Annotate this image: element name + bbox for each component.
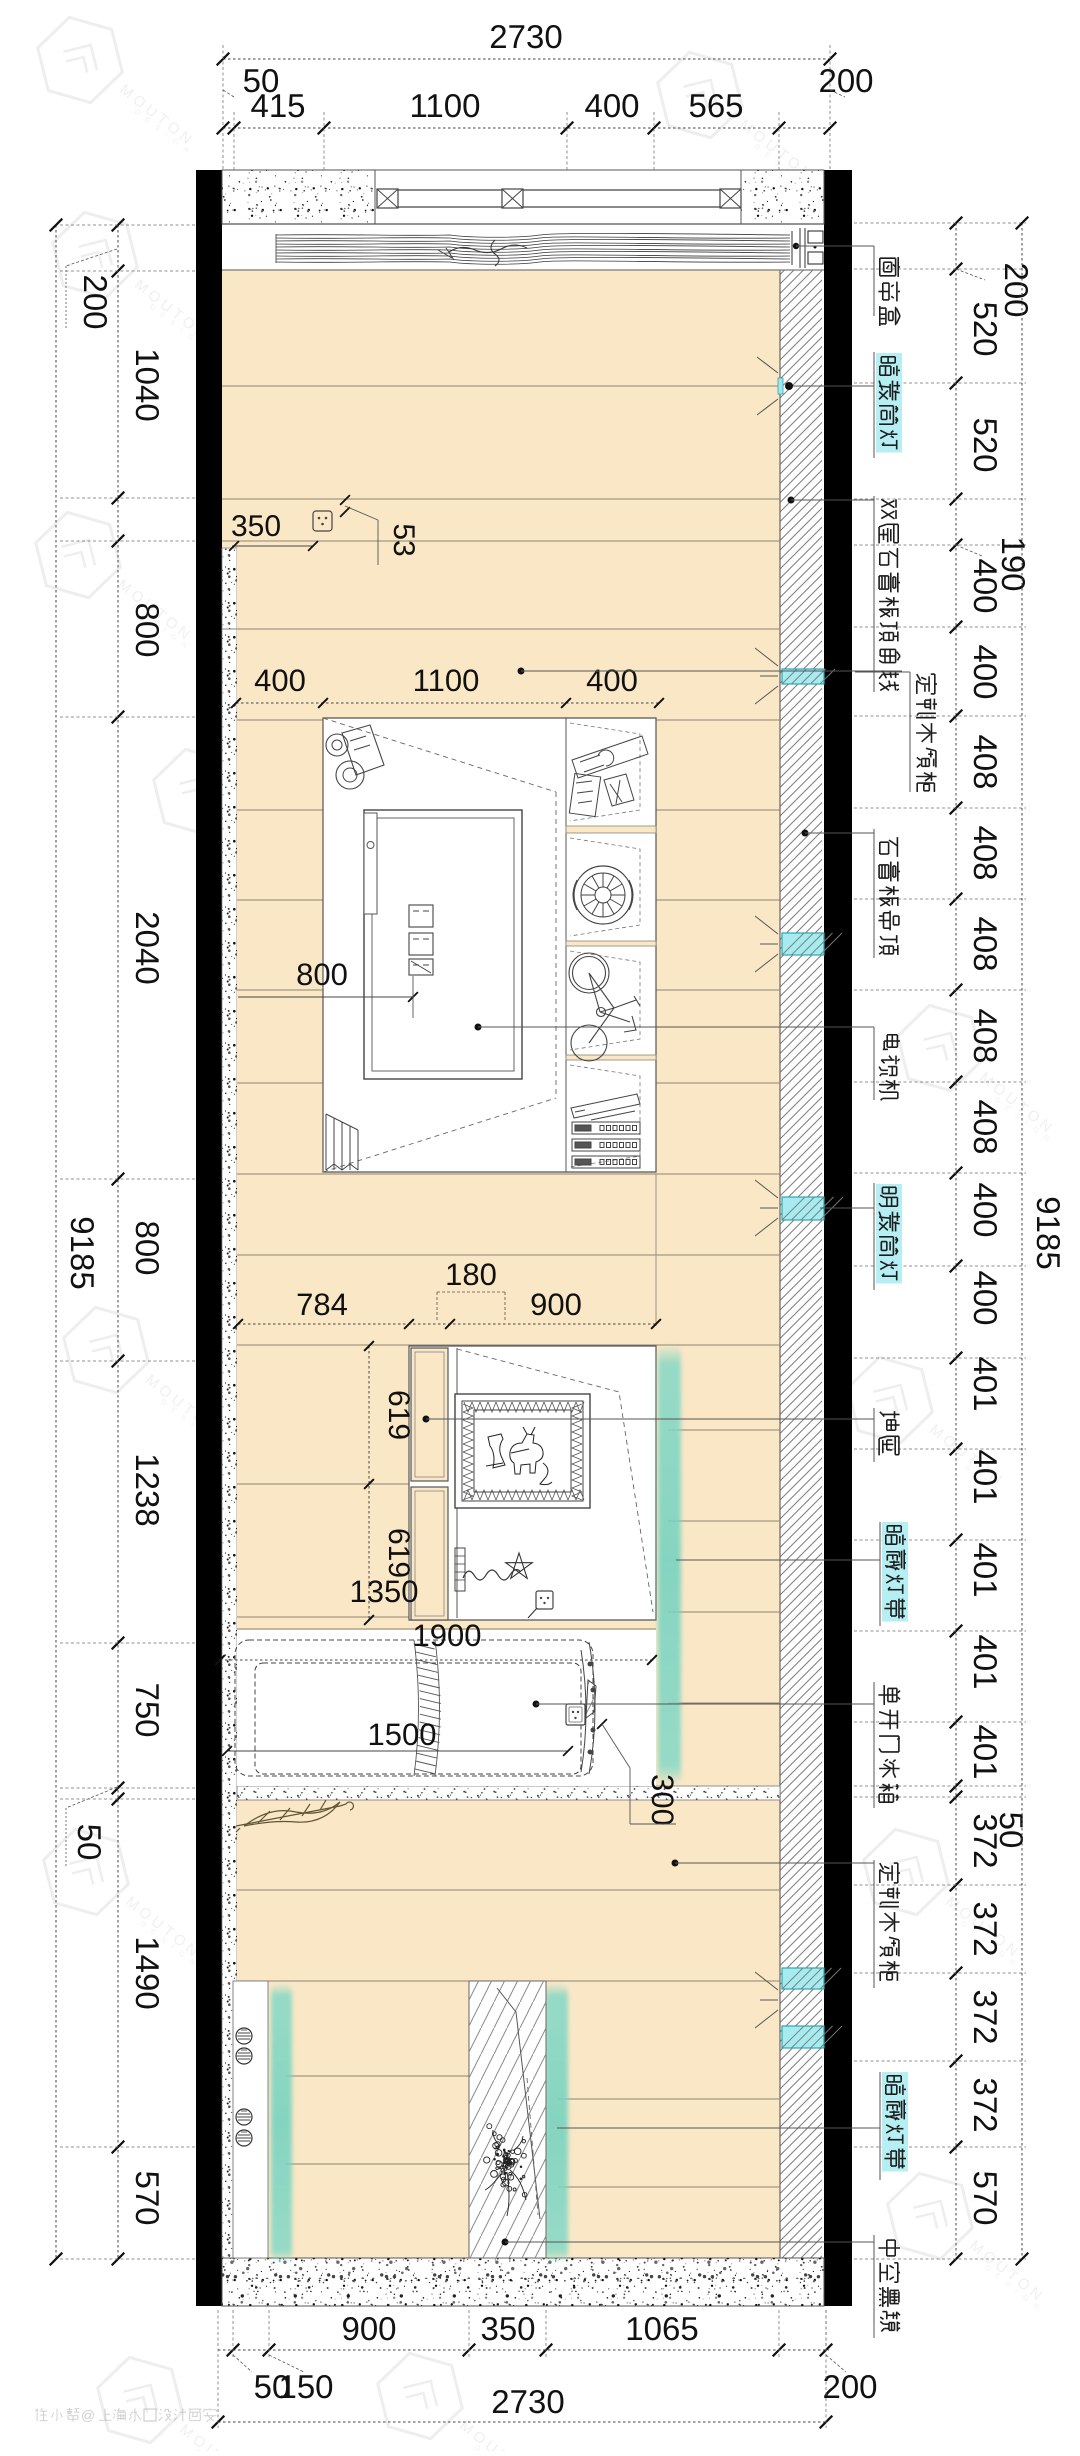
svg-text:400: 400 [967,644,1004,699]
svg-text:1065: 1065 [625,2310,698,2347]
svg-text:570: 570 [967,2170,1004,2225]
svg-text:401: 401 [967,1356,1004,1411]
svg-text:408: 408 [967,916,1004,971]
svg-text:350: 350 [480,2310,535,2347]
svg-text:180: 180 [445,1257,497,1292]
svg-text:372: 372 [967,1901,1004,1956]
svg-text:2040: 2040 [129,911,166,984]
svg-text:408: 408 [967,1099,1004,1154]
svg-text:1040: 1040 [129,348,166,421]
svg-text:800: 800 [129,602,166,657]
svg-text:1100: 1100 [410,87,481,124]
svg-text:1100: 1100 [413,663,480,698]
svg-text:400: 400 [967,1182,1004,1237]
svg-text:372: 372 [967,1989,1004,2044]
svg-text:800: 800 [296,957,348,992]
svg-text:1238: 1238 [129,1453,166,1526]
svg-text:MOUTON: MOUTON [176,2421,258,2451]
svg-text:200: 200 [998,262,1035,317]
svg-text:750: 750 [129,1682,166,1737]
svg-text:2730: 2730 [489,18,562,55]
svg-text:401: 401 [967,1724,1004,1779]
svg-text:415: 415 [250,87,305,124]
svg-text:619: 619 [382,1528,415,1578]
svg-text:MOUTON: MOUTON [966,2237,1048,2306]
svg-text:50: 50 [993,1812,1030,1849]
svg-text:1500: 1500 [368,1717,437,1752]
svg-text:9185: 9185 [1030,1196,1067,1269]
svg-text:190: 190 [995,536,1032,591]
svg-text:401: 401 [967,1634,1004,1689]
svg-text:900: 900 [341,2310,396,2347]
svg-text:400: 400 [254,663,306,698]
svg-text:401: 401 [967,1542,1004,1597]
svg-text:200: 200 [818,62,873,99]
svg-text:408: 408 [967,1008,1004,1063]
svg-text:565: 565 [688,87,743,124]
svg-text:200: 200 [822,2368,877,2405]
svg-text:50: 50 [71,1824,108,1861]
svg-text:400: 400 [586,663,638,698]
svg-text:9185: 9185 [64,1216,101,1289]
svg-text:350: 350 [231,510,281,543]
svg-text:800: 800 [129,1220,166,1275]
svg-text:400: 400 [584,87,639,124]
svg-text:900: 900 [530,1287,582,1322]
svg-text:408: 408 [967,734,1004,789]
svg-text:619: 619 [382,1390,415,1440]
svg-text:1490: 1490 [129,1936,166,2009]
svg-text:200: 200 [77,274,114,329]
svg-text:1350: 1350 [350,1574,419,1609]
svg-text:2730: 2730 [491,2383,564,2420]
svg-text:784: 784 [296,1287,348,1322]
svg-text:150: 150 [278,2368,333,2405]
svg-text:408: 408 [967,825,1004,880]
svg-text:372: 372 [967,2077,1004,2132]
svg-text:401: 401 [967,1449,1004,1504]
svg-text:@: @ [81,2407,95,2423]
svg-text:53: 53 [387,523,420,556]
svg-text:570: 570 [129,2170,166,2225]
svg-text:520: 520 [967,417,1004,472]
svg-text:MOUTON: MOUTON [116,81,198,150]
svg-text:300: 300 [645,1774,680,1826]
svg-text:1900: 1900 [413,1618,482,1653]
svg-text:400: 400 [967,1270,1004,1325]
